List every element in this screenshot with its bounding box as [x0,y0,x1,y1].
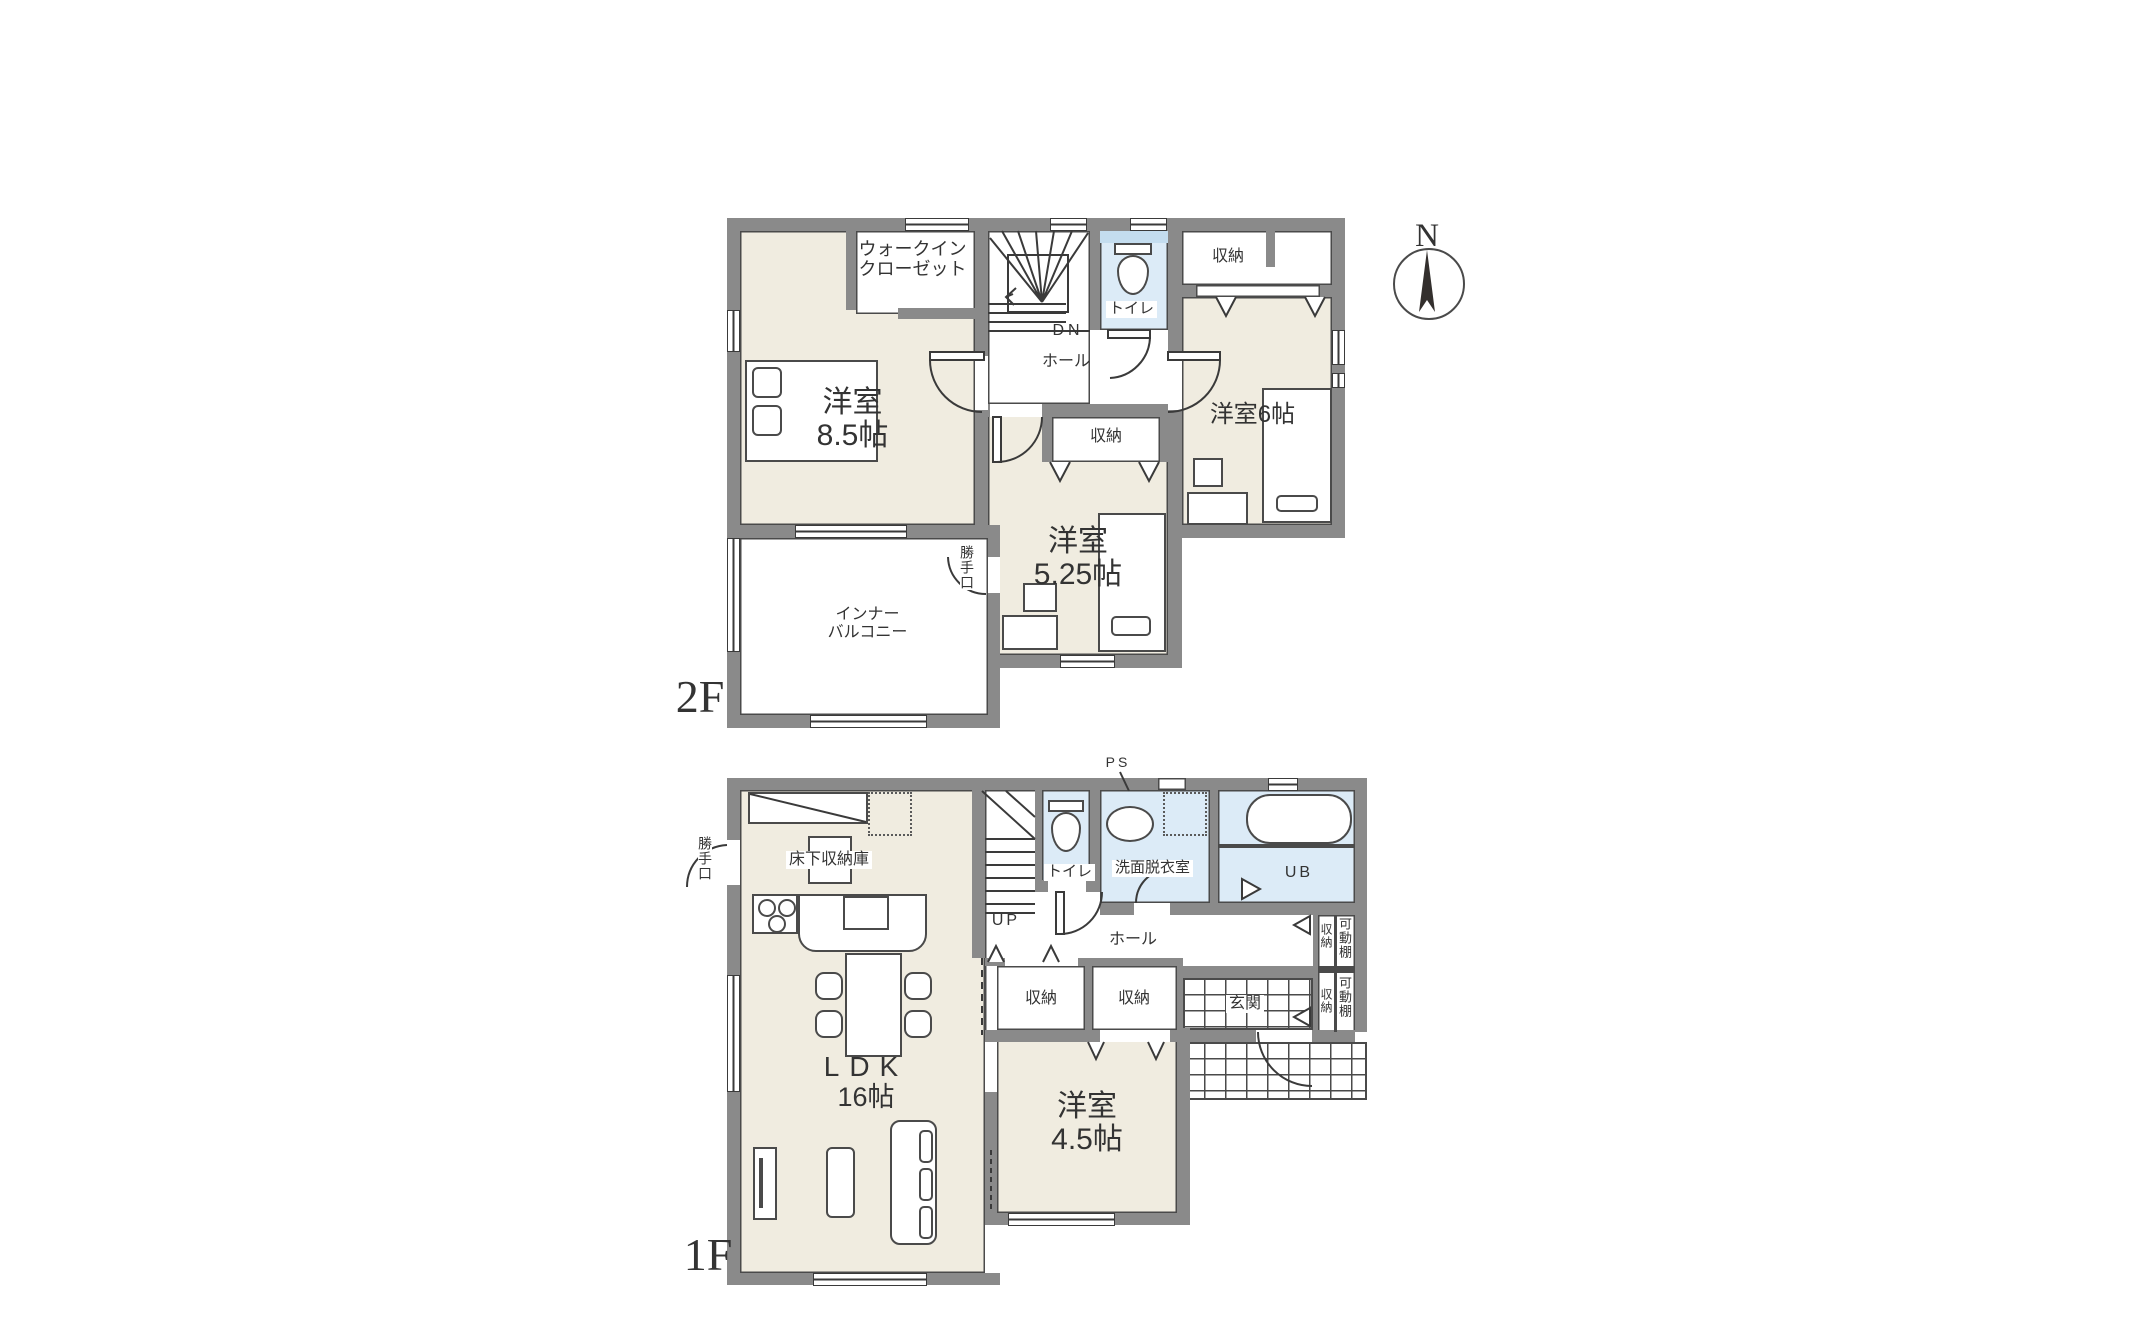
label-closet-top-2f: 収納 [1198,248,1258,266]
tv [759,1158,763,1208]
label-bedroom-6: 洋室6帖 [1200,402,1305,428]
wall [727,218,740,538]
label-ps: PS [1098,755,1138,770]
bathtub [1246,794,1352,844]
closet-opening [1005,958,1078,966]
door-opening [988,557,1000,593]
kitchen-sink [843,896,889,930]
desk [1187,492,1248,525]
door-opening [975,356,988,410]
label-shoe-storage-top: 収納 [1320,923,1332,949]
door-opening [985,1042,997,1092]
kitchen-counter [748,792,868,824]
wall [1177,958,1183,1030]
wall [1042,417,1052,462]
entrance-door-leaf [1256,1030,1312,1042]
label-walkin-closet: ウォークイン クローゼット [845,240,980,280]
door-opening-katteguchi [727,840,740,885]
label-inner-balcony: インナー バルコニー [800,606,935,641]
dining-table [845,953,902,1057]
wall [1355,778,1367,1032]
label-bedroom-5-25: 洋室 5.25帖 [1013,525,1143,591]
balcony-rail [727,538,740,652]
window [1130,218,1167,231]
closet-opening [1196,285,1320,297]
chair [904,1010,932,1038]
label-closet-mid-2f: 収納 [1076,428,1136,446]
wall-wic [898,308,975,319]
label-washroom: 洗面脱衣室 [1112,860,1193,877]
wall [1313,915,1318,1032]
wall [1168,525,1345,538]
strip-divider [1318,966,1355,973]
window [1008,1213,1115,1226]
door-opening [1134,903,1170,915]
burner [758,899,776,917]
label-shelf-top: 可動棚 [1338,917,1351,959]
door-opening [990,404,1042,417]
refrigerator-space [868,792,912,836]
sofa-cushion [919,1130,933,1163]
wall [727,218,1345,231]
window-balcony-door [795,525,907,538]
window [1060,655,1115,668]
wall-stair [972,790,985,958]
pillow [1276,495,1318,512]
label-closet-hall: 収納 [1011,990,1071,1008]
label-service-door-1f: 勝手口 [698,836,712,881]
tv-board [753,1147,777,1220]
label-floor-storage: 床下収納庫 [786,851,872,869]
chair [1002,615,1058,650]
pillow [1111,616,1151,636]
window [1268,778,1298,791]
sofa-cushion [919,1206,933,1239]
window [810,715,927,728]
window [727,310,740,352]
window [1332,373,1345,388]
label-shelf-bottom: 可動棚 [1338,976,1351,1018]
label-ldk: LDK 16帖 [800,1052,932,1112]
washbasin [1106,806,1154,842]
floor-plan-canvas: ウォークイン クローゼット 洋室 8.5帖 DN ホール トイレ 収納 洋室6帖… [0,0,2134,1335]
wall [1210,790,1218,905]
burner [768,915,786,933]
toilet-tank [1048,800,1084,812]
porch-grid [1183,1042,1367,1100]
window [1332,330,1345,365]
window [813,1273,927,1286]
toilet-shelf [1100,231,1168,243]
wall [1177,1028,1190,1225]
burner [778,899,796,917]
wall [1183,966,1313,978]
door-opening [1048,880,1086,892]
floor-label-1f: 1F [668,1230,748,1281]
wall [1085,966,1092,1030]
ps-box [1158,778,1186,790]
label-bedroom-8-5: 洋室 8.5帖 [790,386,915,452]
label-bedroom-4-5: 洋室 4.5帖 [1022,1090,1152,1156]
closet-divider [1266,231,1275,267]
label-shoe-storage-bottom: 収納 [1320,988,1332,1014]
wall [1168,231,1182,330]
wall [1035,790,1042,892]
chair [815,972,843,1000]
chair [1193,458,1223,487]
window [905,218,969,231]
window [727,975,740,1092]
label-entrance: 玄関 [1226,995,1264,1013]
label-toilet-2f: トイレ [1106,301,1157,318]
ub-divider [1218,844,1355,848]
toilet-tank [1114,243,1152,255]
chair [815,1010,843,1038]
washer-space [1163,792,1207,836]
chair [904,972,932,1000]
floor-label-2f: 2F [660,672,740,723]
label-ub: UB [1278,864,1320,882]
coffee-table [826,1147,855,1218]
label-service-door-2f: 勝手口 [960,545,974,590]
label-hall-2f: ホール [1030,353,1102,371]
label-closet-bedroom: 収納 [1104,990,1164,1008]
wall [1160,417,1168,462]
door-opening [1168,358,1182,410]
room-stair-hall-2f [988,231,1090,404]
closet-opening [1100,1030,1170,1042]
window [1050,218,1087,231]
compass-circle [1393,248,1465,320]
label-toilet-1f: トイレ [1044,864,1095,881]
wall [1090,231,1100,330]
pillow [752,405,782,436]
compass-north-label: N [1407,218,1447,254]
label-dn: DN [1040,322,1096,340]
label-up: UP [985,912,1027,930]
label-hall-1f: ホール [1097,931,1169,949]
sofa-cushion [919,1168,933,1201]
pillow [752,367,782,398]
